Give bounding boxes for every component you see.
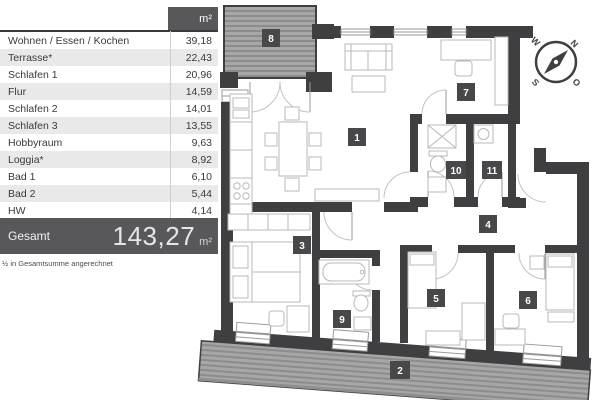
room-label-4: 4 <box>479 215 497 233</box>
svg-text:11: 11 <box>487 166 498 177</box>
room-label-11: 11 <box>482 161 502 179</box>
room-label-9: 9 <box>333 310 351 328</box>
total-value-group: 143,27 m² <box>113 221 212 252</box>
sofa <box>345 44 392 70</box>
room-name: Schlafen 3 <box>0 120 164 132</box>
bedroom2-furniture <box>408 252 485 345</box>
svg-text:6: 6 <box>525 296 531 307</box>
coffee-table <box>352 76 385 92</box>
room-name: HW <box>0 205 164 217</box>
svg-text:8: 8 <box>268 34 274 45</box>
bedroom1-furniture <box>228 214 310 332</box>
room-area: 20,96 <box>164 69 218 81</box>
svg-text:9: 9 <box>339 315 345 326</box>
room-label-7: 7 <box>457 83 475 101</box>
table-row: Schlafen 214,01 <box>0 100 218 117</box>
table-row: Flur14,59 <box>0 83 218 100</box>
room-label-5: 5 <box>427 289 445 307</box>
room-name: Schlafen 2 <box>0 103 164 115</box>
total-label: Gesamt <box>8 229 113 243</box>
table-row: Schlafen 313,55 <box>0 117 218 134</box>
room-area: 22,43 <box>164 52 218 64</box>
kitchen-counter <box>230 94 252 226</box>
floorplan-page: 1 2 3 4 5 6 7 8 9 10 11 N O S W <box>0 0 600 400</box>
room-label-2: 2 <box>390 361 410 379</box>
total-value: 143,27 <box>113 221 196 252</box>
room-name: Wohnen / Essen / Kochen <box>0 35 164 47</box>
total-bar: Gesamt 143,27 m² <box>0 218 218 254</box>
room-name: Schlafen 1 <box>0 69 164 81</box>
compass-south: S <box>530 77 541 88</box>
svg-text:3: 3 <box>299 241 305 252</box>
bath2-fixtures <box>428 125 456 192</box>
table-row: Loggia*8,92 <box>0 151 218 168</box>
table-row: HW4,14 <box>0 202 218 219</box>
room-label-10: 10 <box>446 161 466 179</box>
room-area: 9,63 <box>164 137 218 149</box>
room-area: 14,01 <box>164 103 218 115</box>
table-row: Terrasse*22,43 <box>0 49 218 66</box>
room-area: 39,18 <box>164 35 218 47</box>
svg-text:2: 2 <box>397 366 403 377</box>
room-area: 4,14 <box>164 205 218 217</box>
sideboard <box>315 189 379 201</box>
room-name: Bad 2 <box>0 188 164 200</box>
unit-header: m² <box>168 7 218 30</box>
room-name: Bad 1 <box>0 171 164 183</box>
room-name: Terrasse* <box>0 52 164 64</box>
loggia-terrace <box>220 6 334 102</box>
room-area: 13,55 <box>164 120 218 132</box>
footnote: ½ in Gesamtsumme angerechnet <box>2 259 113 268</box>
svg-text:4: 4 <box>485 220 491 231</box>
bottom-wall-and-terrace <box>198 320 591 400</box>
room-name: Flur <box>0 86 164 98</box>
table-row: Wohnen / Essen / Kochen39,18 <box>0 32 218 49</box>
svg-text:7: 7 <box>463 88 469 99</box>
total-unit: m² <box>199 236 212 248</box>
room-label-1: 1 <box>348 128 366 146</box>
room-name: Hobbyraum <box>0 137 164 149</box>
room-label-8: 8 <box>262 29 280 47</box>
table-row: Schlafen 120,96 <box>0 66 218 83</box>
room-area: 5,44 <box>164 188 218 200</box>
room-label-6: 6 <box>519 291 537 309</box>
svg-text:5: 5 <box>433 294 439 305</box>
dining-set <box>265 107 321 191</box>
room-name: Loggia* <box>0 154 164 166</box>
area-rows: Wohnen / Essen / Kochen39,18 Terrasse*22… <box>0 32 218 219</box>
table-row: Hobbyraum9,63 <box>0 134 218 151</box>
room-label-3: 3 <box>293 236 311 254</box>
room-area: 8,92 <box>164 154 218 166</box>
table-row: Bad 16,10 <box>0 168 218 185</box>
column-separator <box>170 31 171 218</box>
room-area: 6,10 <box>164 171 218 183</box>
svg-text:1: 1 <box>354 133 360 144</box>
room-area: 14,59 <box>164 86 218 98</box>
svg-text:10: 10 <box>450 166 462 177</box>
washing-machine <box>474 125 493 143</box>
table-row: Bad 25,44 <box>0 185 218 202</box>
compass-east: O <box>570 76 582 88</box>
